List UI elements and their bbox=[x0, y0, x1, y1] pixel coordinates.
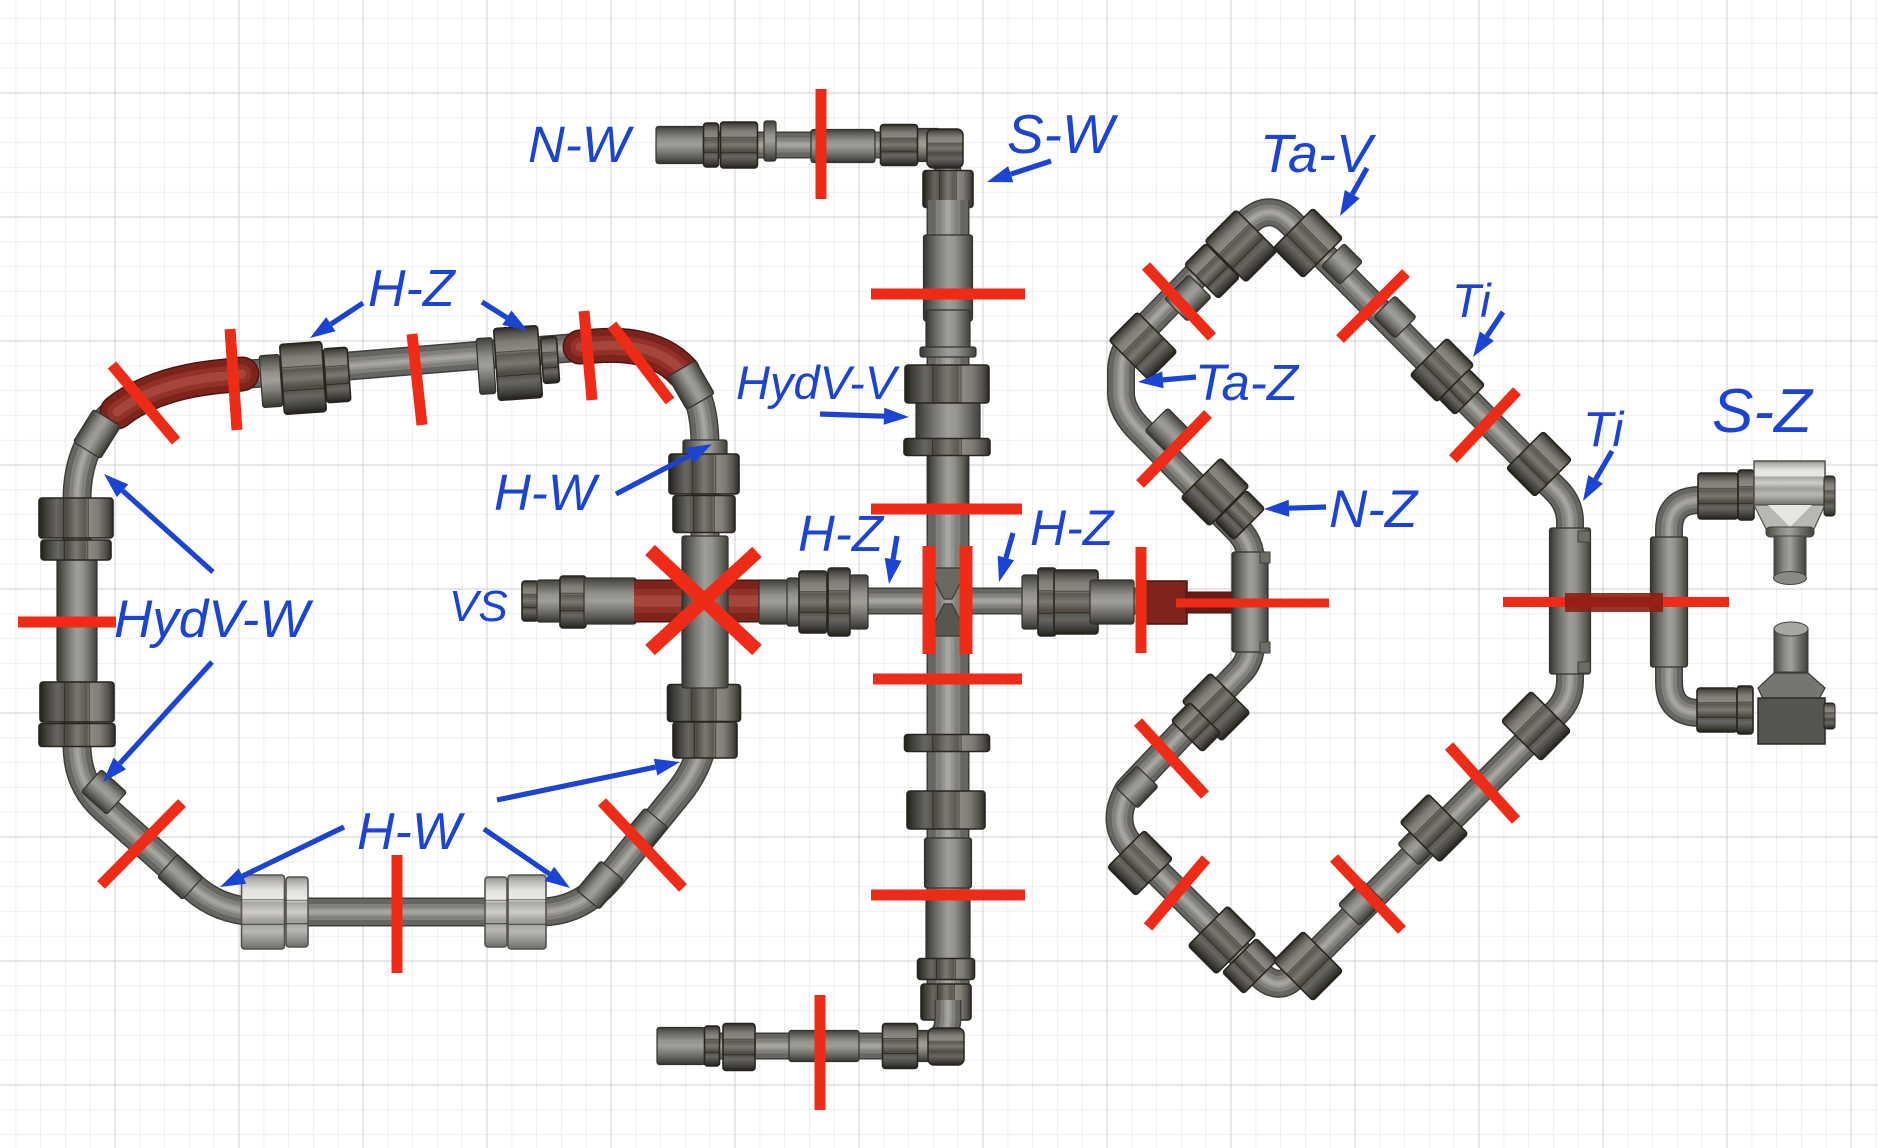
svg-text:H-Z: H-Z bbox=[798, 505, 885, 562]
svg-text:Ti: Ti bbox=[1452, 274, 1492, 327]
svg-text:Ta-Z: Ta-Z bbox=[1195, 354, 1300, 411]
svg-text:H-Z: H-Z bbox=[1030, 500, 1115, 556]
svg-text:N-Z: N-Z bbox=[1329, 480, 1419, 539]
svg-text:H-W: H-W bbox=[494, 464, 601, 521]
svg-text:VS: VS bbox=[449, 582, 508, 631]
svg-text:Ta-V: Ta-V bbox=[1260, 124, 1377, 184]
svg-text:S-Z: S-Z bbox=[1712, 377, 1814, 446]
svg-text:HydV-W: HydV-W bbox=[114, 590, 314, 649]
svg-text:H-Z: H-Z bbox=[368, 260, 457, 318]
svg-text:N-W: N-W bbox=[528, 116, 635, 173]
svg-text:Ti: Ti bbox=[1583, 403, 1625, 457]
svg-text:S-W: S-W bbox=[1007, 103, 1119, 165]
svg-text:H-W: H-W bbox=[357, 803, 466, 861]
svg-text:HydV-V: HydV-V bbox=[736, 356, 900, 409]
